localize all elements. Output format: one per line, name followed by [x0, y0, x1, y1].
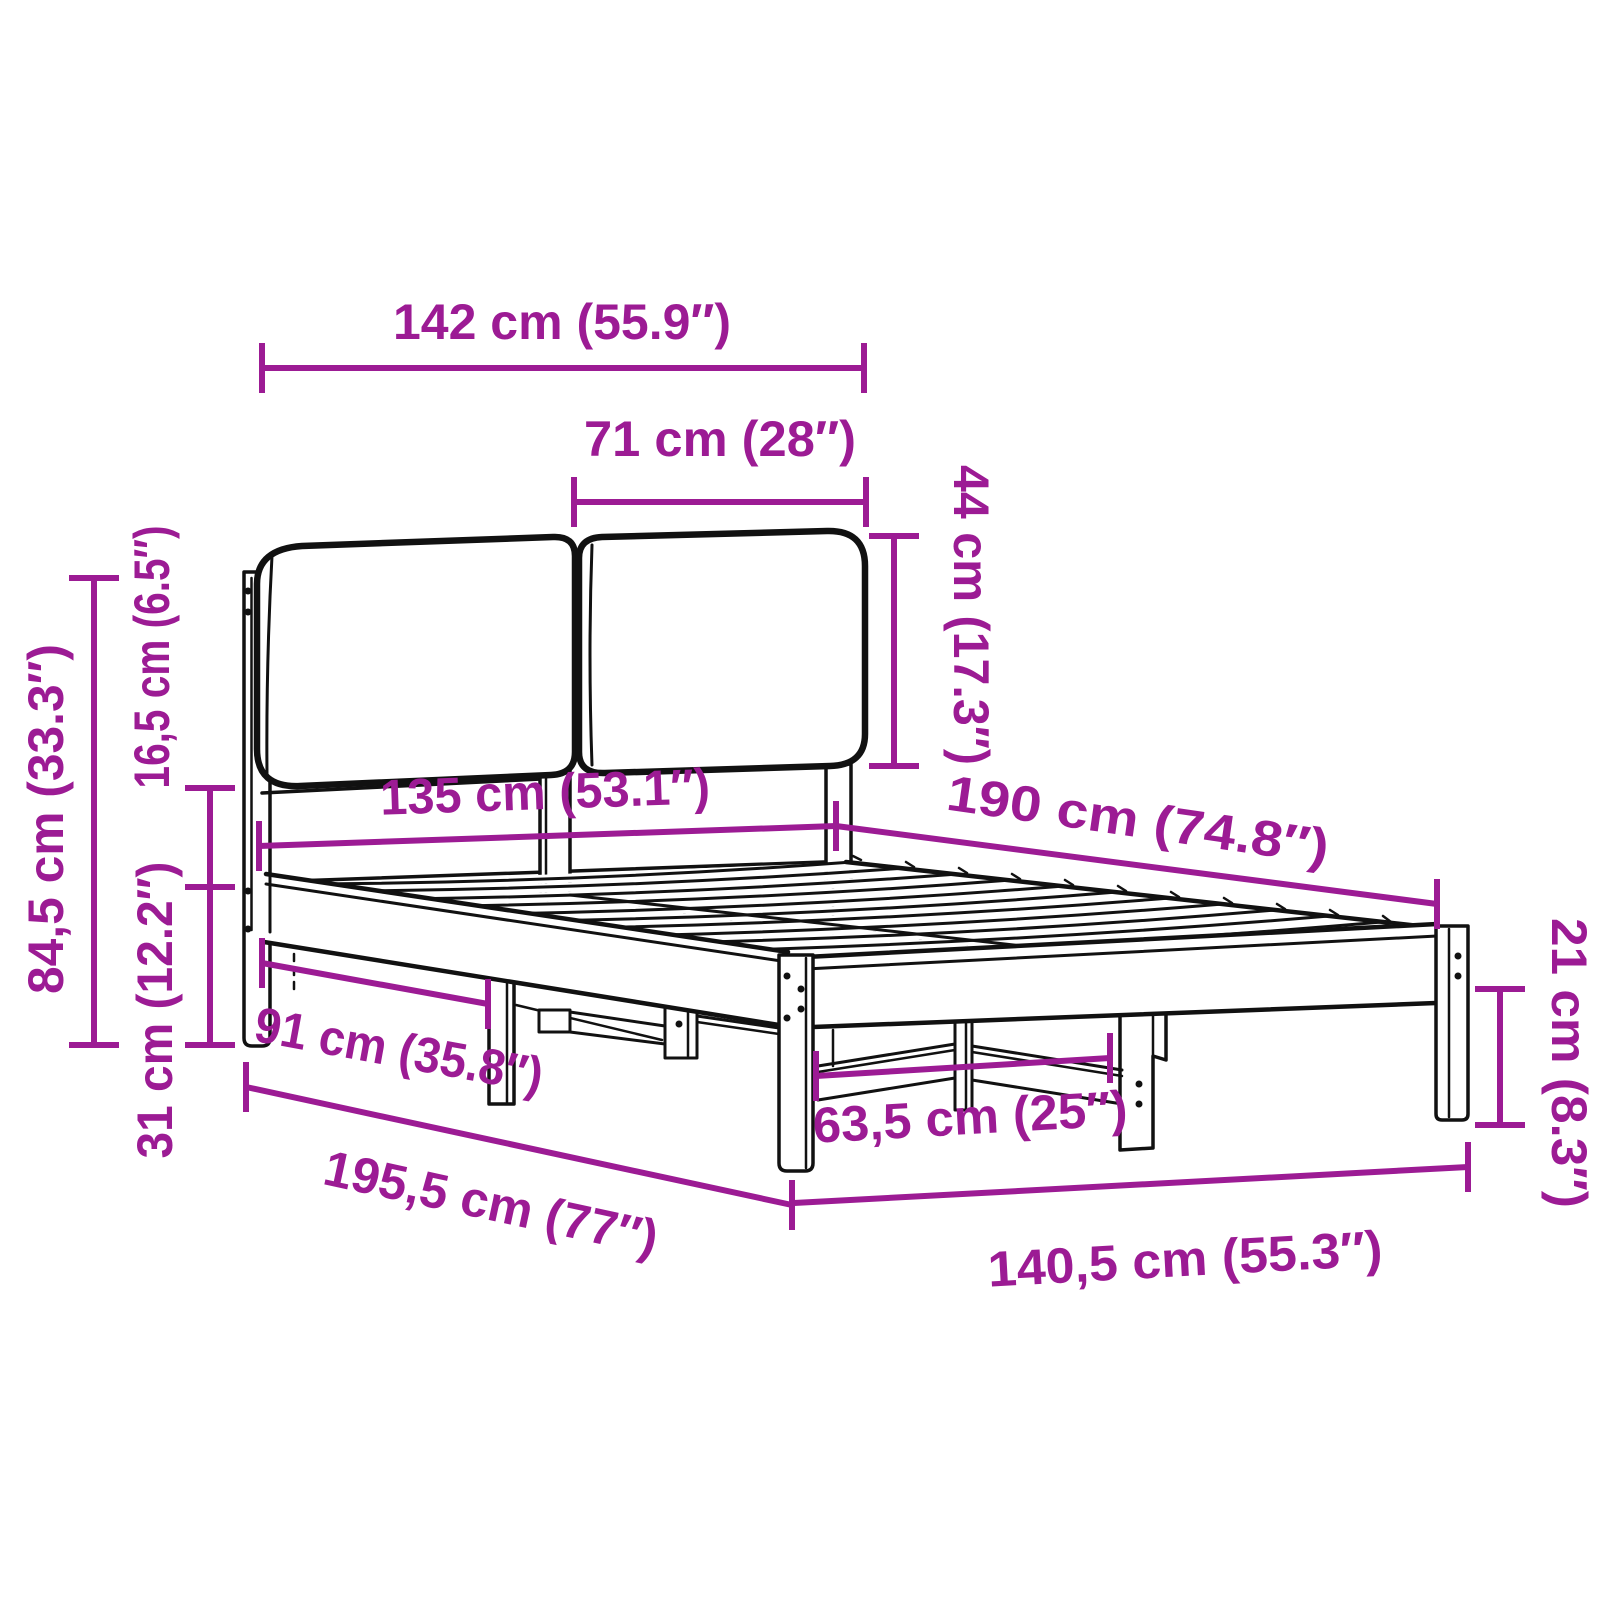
svg-text:84,5 cm (33.3″): 84,5 cm (33.3″)	[18, 644, 74, 994]
svg-text:44 cm (17.3″): 44 cm (17.3″)	[943, 465, 999, 765]
svg-text:31 cm (12.2″): 31 cm (12.2″)	[127, 862, 183, 1159]
svg-text:16,5 cm (6.5″): 16,5 cm (6.5″)	[124, 526, 180, 789]
svg-text:21 cm (8.3″): 21 cm (8.3″)	[1541, 918, 1597, 1208]
svg-text:135 cm (53.1″): 135 cm (53.1″)	[379, 758, 711, 825]
svg-text:142 cm (55.9″): 142 cm (55.9″)	[393, 294, 731, 350]
svg-text:71 cm (28″): 71 cm (28″)	[584, 411, 856, 467]
